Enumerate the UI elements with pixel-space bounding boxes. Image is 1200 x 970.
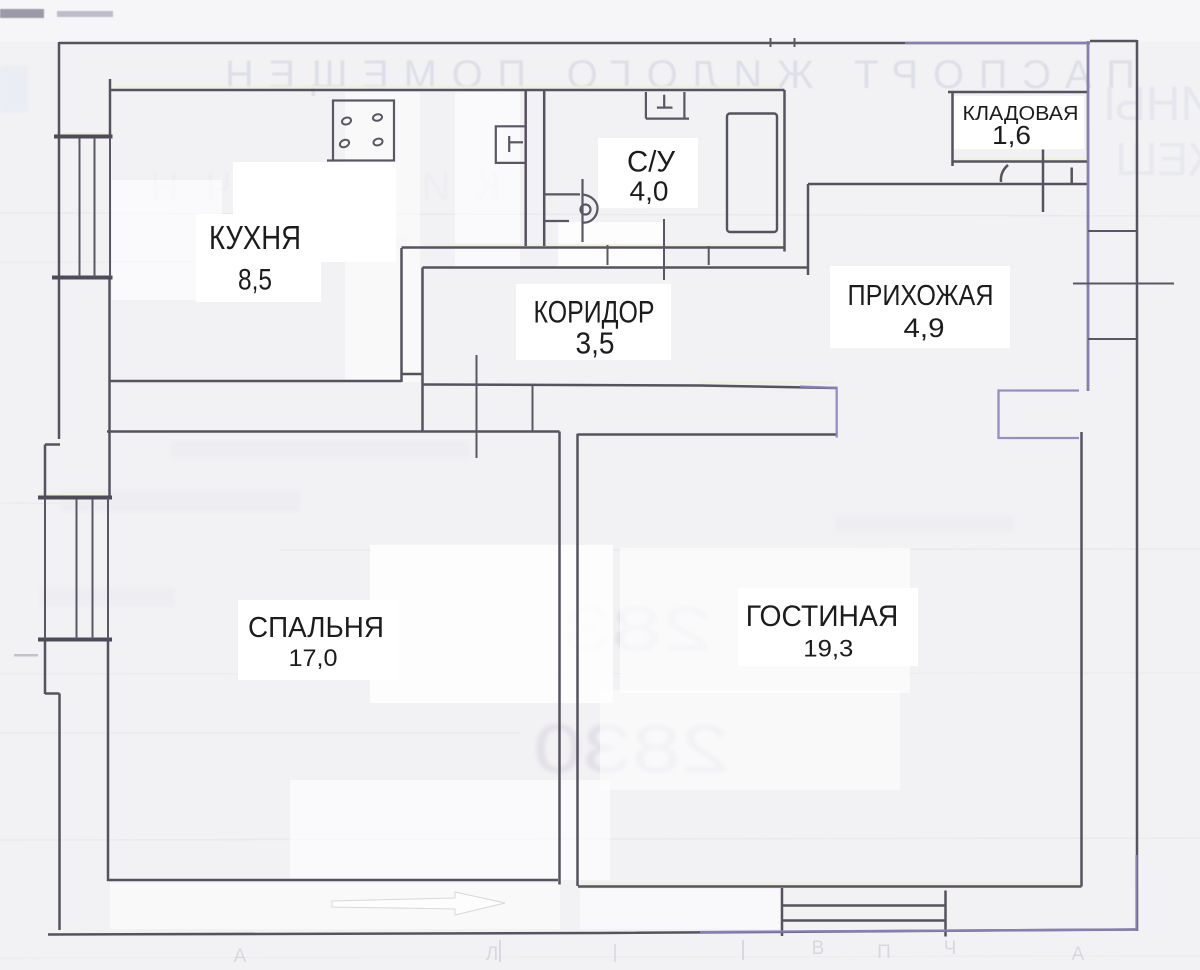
svg-text:Л: Л xyxy=(486,944,498,965)
svg-text:КОРИДОР: КОРИДОР xyxy=(534,294,655,330)
svg-text:19,3: 19,3 xyxy=(803,636,853,663)
svg-text:А: А xyxy=(1072,944,1085,965)
svg-text:4,9: 4,9 xyxy=(904,313,945,343)
svg-text:СПАЛЬНЯ: СПАЛЬНЯ xyxy=(248,612,384,644)
svg-text:4,0: 4,0 xyxy=(630,176,669,207)
svg-text:В: В xyxy=(812,938,825,959)
svg-text:ИНЫ: ИНЫ xyxy=(1103,78,1200,131)
svg-text:А: А xyxy=(234,946,247,967)
svg-text:С/У: С/У xyxy=(627,146,676,179)
svg-text:П: П xyxy=(877,942,891,963)
svg-text:ГОСТИНАЯ: ГОСТИНАЯ xyxy=(746,600,899,633)
svg-text:1,6: 1,6 xyxy=(992,120,1031,150)
svg-text:17,0: 17,0 xyxy=(289,645,338,672)
svg-text:КУХНЯ: КУХНЯ xyxy=(209,219,301,256)
svg-text:ПРИХОЖАЯ: ПРИХОЖАЯ xyxy=(848,280,994,312)
svg-text:|: | xyxy=(613,942,618,963)
svg-text:8,5: 8,5 xyxy=(238,264,272,297)
svg-text:3,5: 3,5 xyxy=(576,326,615,361)
svg-text:Ч: Ч xyxy=(944,938,957,959)
svg-text:КЕШ: КЕШ xyxy=(1115,133,1200,185)
